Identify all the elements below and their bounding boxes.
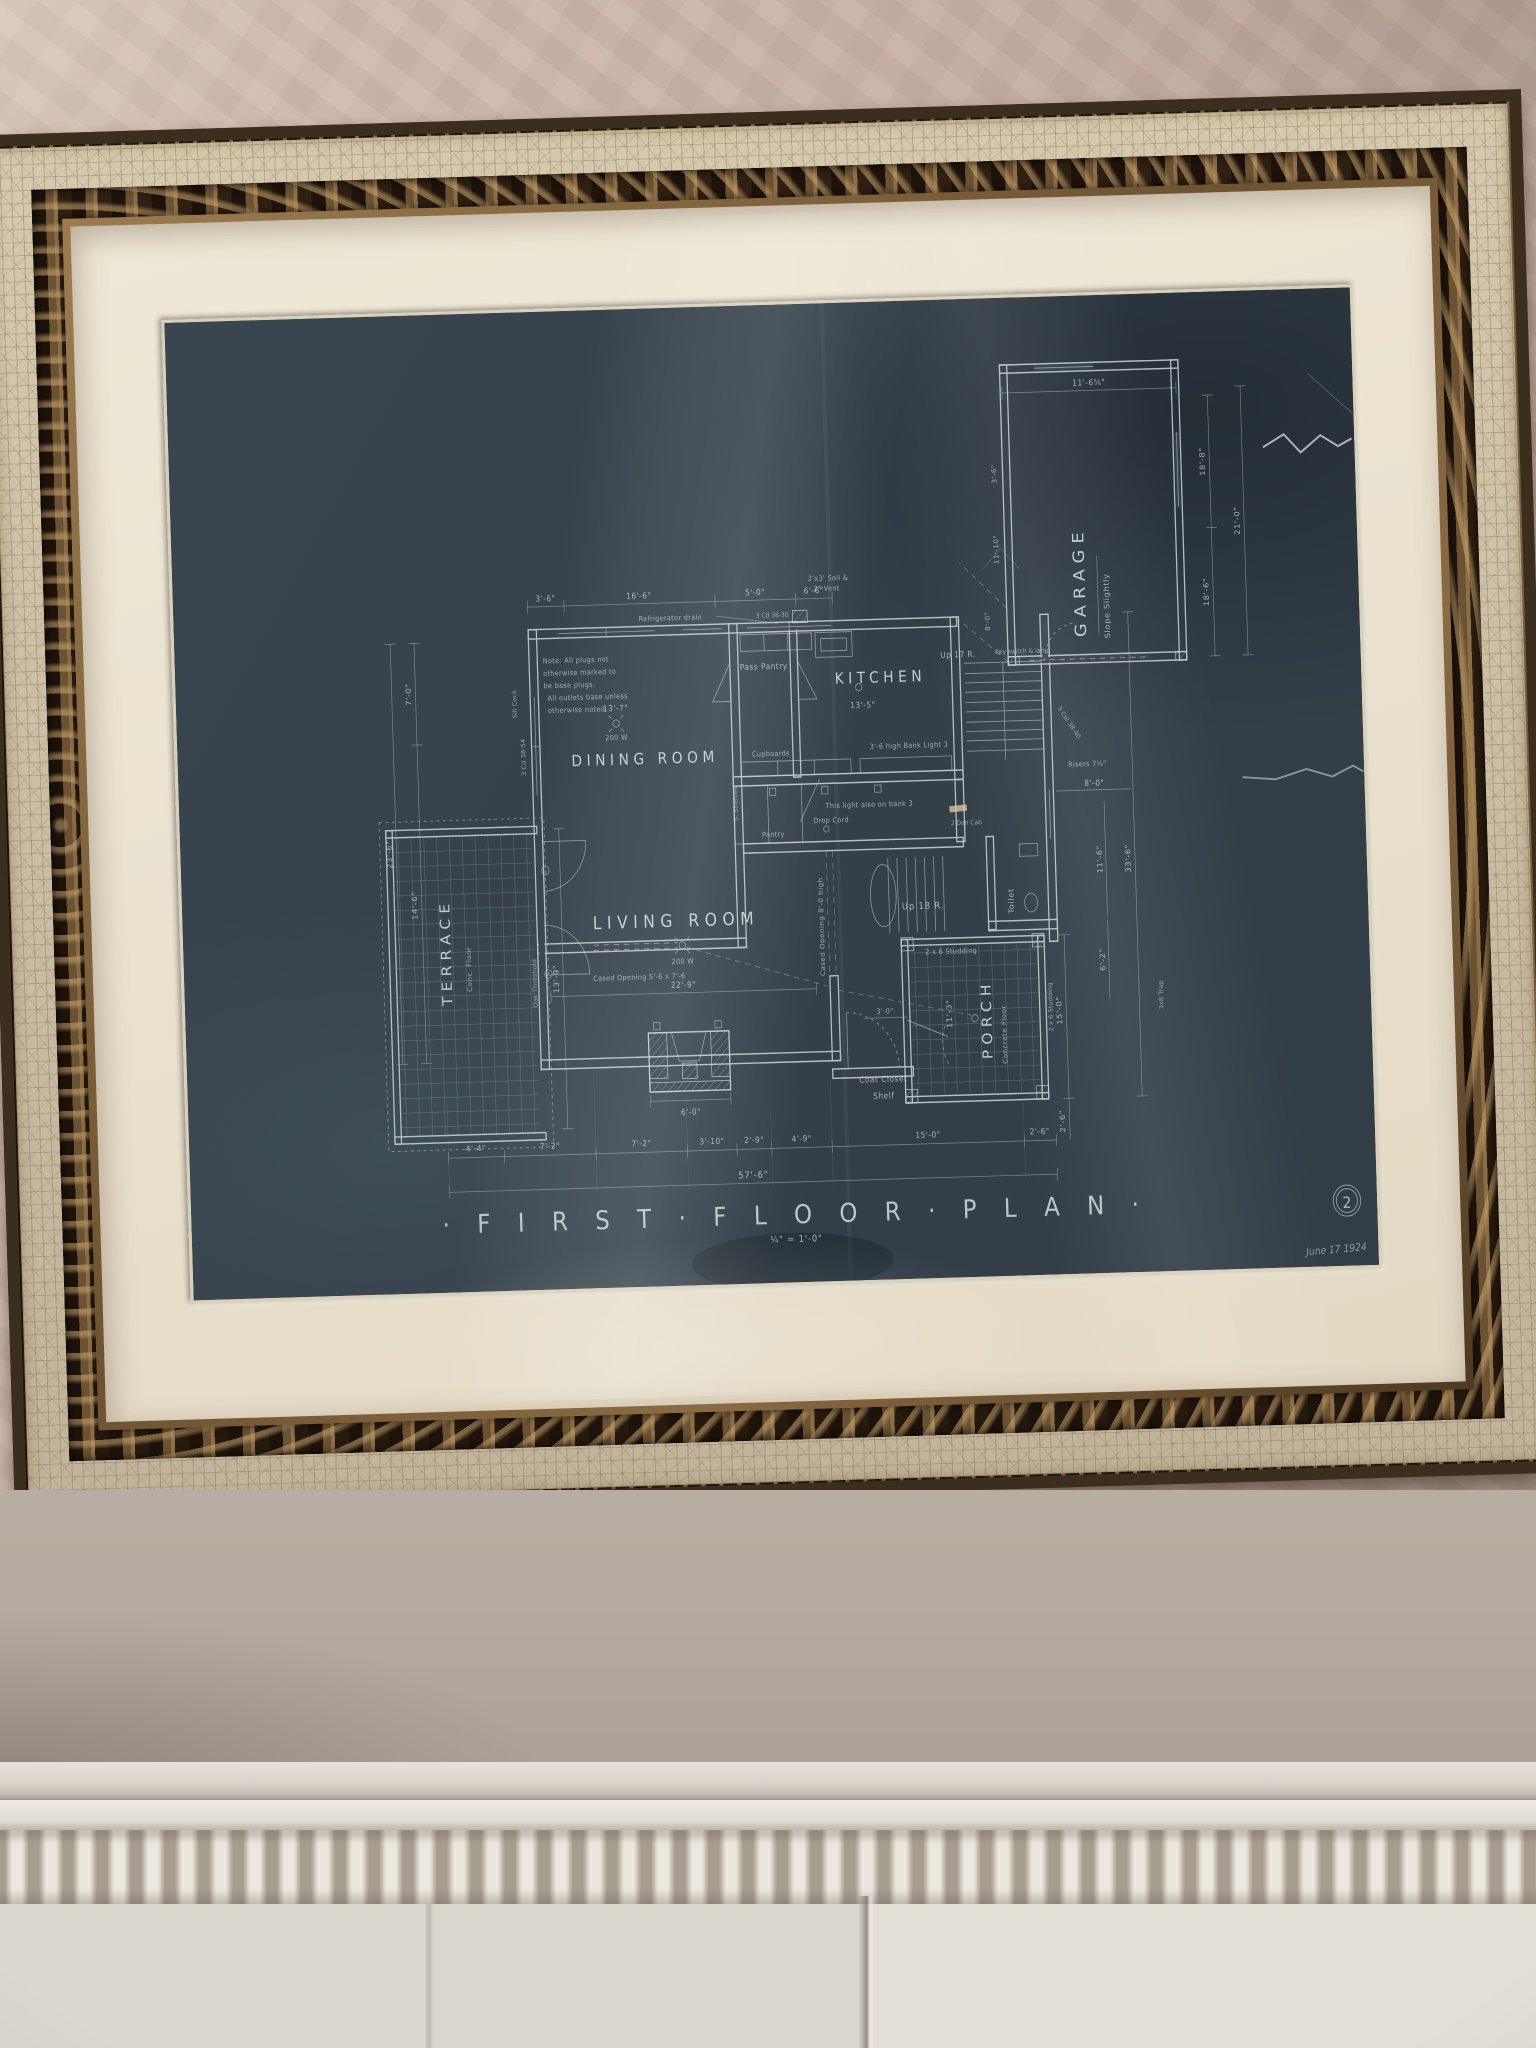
svg-text:15'-0": 15'-0" [1055,996,1064,1025]
panel-seam-left [424,1904,434,2048]
sheet-number: 2 [1342,1194,1351,1212]
svg-text:21'-0": 21'-0" [1232,506,1241,535]
svg-text:13'-9": 13'-9" [552,965,561,994]
svg-text:4'-4": 4'-4" [466,1143,486,1153]
svg-text:Pass Pantry: Pass Pantry [740,661,788,672]
svg-text:Slope Slightly: Slope Slightly [1102,573,1112,638]
svg-text:18'-8": 18'-8" [1198,447,1207,476]
picture-frame: KITCHEN 13'-5" DINING ROOM 13'-7" 200 W … [0,89,1536,1519]
svg-text:Cupboards: Cupboards [752,749,790,759]
mantel-cap-step [0,1800,1536,1830]
panel-seam-center [858,1896,874,2048]
svg-text:11'-6⅝": 11'-6⅝" [1072,377,1105,388]
sheet-date: June 17 1924 [1304,1242,1367,1259]
svg-text:33'-6": 33'-6" [1124,844,1133,873]
svg-text:7'-2": 7'-2" [631,1138,651,1148]
svg-text:Key switch & lamp: Key switch & lamp [995,647,1050,656]
svg-text:Up 18 R.: Up 18 R. [902,901,945,913]
svg-text:3'-6": 3'-6" [535,594,555,604]
stairs [864,661,1050,933]
svg-text:8'-0": 8'-0" [984,612,992,631]
svg-text:5'-0": 5'-0" [745,587,765,597]
svg-text:2'-6": 2'-6" [1058,1110,1067,1133]
svg-text:2 Den Cab: 2 Den Cab [951,819,982,827]
porch-grid [910,944,1041,1095]
svg-text:200 W: 200 W [605,733,628,742]
svg-text:2'x3' Soil &: 2'x3' Soil & [808,573,849,583]
svg-text:11'-3": 11'-3" [945,999,954,1028]
svg-text:otherwise marked to: otherwise marked to [543,667,616,678]
blueprint-sheet: KITCHEN 13'-5" DINING ROOM 13'-7" 200 W … [161,284,1382,1303]
svg-text:Cased Opening 8'-0 high: Cased Opening 8'-0 high [817,877,827,976]
svg-text:S. Shelves: S. Shelves [732,787,740,822]
paper-blemishes [663,287,1378,1293]
svg-text:11'-6": 11'-6" [1095,845,1104,874]
svg-text:be base plugs.: be base plugs. [543,680,595,690]
svg-text:3'-0": 3'-0" [876,1007,893,1016]
svg-text:3'-6 high Bank Light 3: 3'-6 high Bank Light 3 [870,740,949,751]
svg-text:2 x 6 Studding: 2 x 6 Studding [925,947,977,957]
mat-board: KITCHEN 13'-5" DINING ROOM 13'-7" 200 W … [70,186,1465,1422]
svg-text:otherwise noted: otherwise noted [548,705,606,715]
terrace-label: TERRACE [437,898,456,1007]
svg-text:15'-0": 15'-0" [915,1130,941,1140]
svg-text:23'-6": 23'-6" [385,840,394,869]
svg-text:4'-9": 4'-9" [792,1134,812,1144]
lower-wall [0,1490,1536,1770]
floor-plan-drawing: KITCHEN 13'-5" DINING ROOM 13'-7" 200 W … [164,287,1379,1300]
svg-text:Note: All plugs not: Note: All plugs not [543,655,609,665]
sheet-title: · F I R S T · F L O O R · P L A N · [442,1188,1149,1240]
svg-text:2'-6": 2'-6" [1030,1127,1050,1137]
svg-text:7'-0": 7'-0" [404,683,413,706]
svg-text:Sill Cock: Sill Cock [511,689,518,718]
mantel-cap-molding [0,1762,1536,1800]
kitchen-label: KITCHEN [834,667,926,688]
svg-text:13'-7": 13'-7" [603,703,629,713]
mantel-reeded-frieze [0,1830,1536,1904]
svg-text:Risers 7¼": Risers 7¼" [1068,759,1107,769]
svg-text:3 Cd 38-30: 3 Cd 38-30 [756,612,789,620]
svg-text:3 Cd 38-54: 3 Cd 38-54 [520,739,528,776]
svg-text:3x8 Trap: 3x8 Trap [1158,980,1165,1009]
frame-ornate-band: KITCHEN 13'-5" DINING ROOM 13'-7" 200 W … [31,147,1505,1462]
porch-label: PORCH [978,979,996,1059]
svg-text:Shelf: Shelf [873,1091,894,1101]
svg-text:3'-10": 3'-10" [699,1136,725,1146]
svg-text:3'-6": 3'-6" [990,464,998,483]
svg-text:Toilet: Toilet [1007,888,1016,915]
svg-text:3 Col 38-40: 3 Col 38-40 [1056,705,1082,741]
svg-text:6'-6": 6'-6" [804,586,824,596]
frame-crackle-band: KITCHEN 13'-5" DINING ROOM 13'-7" 200 W … [0,103,1536,1504]
svg-text:Coat Closet: Coat Closet [859,1074,907,1085]
svg-text:6'-0": 6'-0" [681,1107,701,1117]
frame-inner-lip: KITCHEN 13'-5" DINING ROOM 13'-7" 200 W … [62,178,1474,1431]
svg-text:Refrigerator drain: Refrigerator drain [639,613,703,623]
svg-text:11'-10": 11'-10" [992,535,1000,564]
svg-text:14'-6": 14'-6" [410,891,419,920]
svg-text:Drop Cord: Drop Cord [813,816,849,826]
svg-text:16'-6": 16'-6" [626,591,652,601]
svg-text:All outlets base unless: All outlets base unless [547,692,628,703]
svg-text:This light also on bank 3: This light also on bank 3 [825,799,913,810]
mantel-panels [0,1904,1536,2048]
svg-text:8'-0": 8'-0" [1084,778,1104,788]
living-label: LIVING ROOM [592,908,759,933]
svg-text:22'-9": 22'-9" [671,980,697,990]
svg-text:18'-6": 18'-6" [1202,577,1211,606]
svg-text:2 x 6 Studding: 2 x 6 Studding [1047,982,1055,1031]
sheet-scale: ¼" = 1'-0" [770,1234,823,1246]
dining-label: DINING ROOM [571,748,719,770]
svg-text:57'-6": 57'-6" [738,1170,769,1181]
title-block: · F I R S T · F L O O R · P L A N · ¼" =… [442,1182,1367,1285]
svg-text:13'-5": 13'-5" [850,700,876,710]
svg-text:200 W: 200 W [671,957,694,966]
svg-text:6'-2": 6'-2" [1098,948,1107,971]
svg-text:2'-9": 2'-9" [744,1135,764,1145]
svg-text:Pantry: Pantry [762,830,785,839]
svg-text:7'-2": 7'-2" [540,1141,560,1151]
svg-text:Up 17 R.: Up 17 R. [940,649,976,660]
svg-text:Conc. Floor: Conc. Floor [465,947,474,992]
garage-label: GARAGE [1069,526,1090,637]
